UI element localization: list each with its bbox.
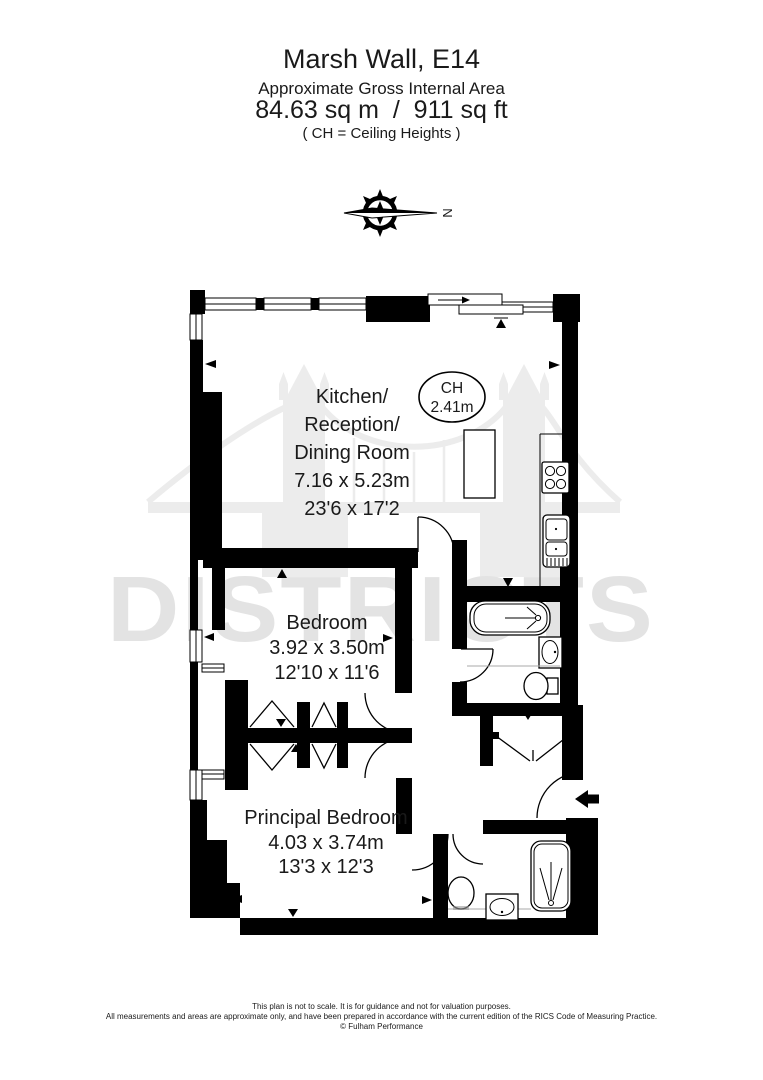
floorplan-page: Marsh Wall, E14 Approximate Gross Intern…	[0, 0, 763, 1080]
principal-bedroom-dims-imperial: 13'3 x 12'3	[278, 856, 374, 878]
disclaimer-copyright: © Fulham Performance	[0, 1022, 763, 1031]
ensuite-toilet-icon	[448, 877, 474, 910]
kitchen-label-line3: Dining Room	[294, 442, 410, 464]
kitchen-dims-imperial: 23'6 x 17'2	[304, 498, 400, 520]
hall-closet-doors	[496, 736, 568, 761]
ensuite-fixtures	[448, 841, 571, 920]
disclaimer-line1: This plan is not to scale. It is for gui…	[0, 1002, 763, 1011]
bedroom-door	[365, 693, 405, 733]
window	[202, 664, 224, 672]
ceiling-height-badge: CH 2.41m	[419, 372, 485, 422]
compass-icon: N	[344, 189, 455, 237]
principal-bedroom-label: Principal Bedroom	[244, 807, 407, 829]
window	[190, 630, 202, 662]
kitchen-label-line2: Reception/	[304, 414, 400, 436]
shower-icon	[531, 841, 571, 911]
ensuite-washbasin-icon	[486, 894, 518, 920]
hall-principal-door	[365, 738, 405, 778]
disclaimer-line2: All measurements and areas are approxima…	[0, 1012, 763, 1021]
window	[202, 770, 224, 779]
compass-north-label: N	[440, 208, 455, 217]
kitchen-dims-metric: 7.16 x 5.23m	[294, 470, 410, 492]
ensuite-door	[453, 834, 483, 864]
window	[264, 298, 311, 310]
toilet-icon	[524, 673, 558, 700]
kitchen-sink-icon	[543, 515, 570, 567]
window	[319, 298, 366, 310]
window	[205, 298, 256, 310]
bathtub-icon	[470, 601, 550, 635]
entrance-arrow-icon	[575, 790, 599, 808]
washbasin-icon	[539, 637, 562, 668]
kitchen-island	[464, 430, 495, 498]
ch-label: CH	[441, 380, 463, 397]
window	[190, 770, 202, 800]
principal-bedroom-dims-metric: 4.03 x 3.74m	[268, 832, 384, 854]
floorplan-svg: DISTRICTS N	[0, 0, 763, 1080]
window	[190, 314, 202, 340]
bedroom-dims-metric: 3.92 x 3.50m	[269, 637, 385, 659]
kitchen-door	[418, 517, 454, 553]
ch-value: 2.41m	[430, 399, 473, 416]
bedroom-dims-imperial: 12'10 x 11'6	[274, 662, 379, 684]
hob-icon	[542, 462, 569, 493]
bedroom-label: Bedroom	[286, 612, 367, 634]
kitchen-label-line1: Kitchen/	[316, 386, 389, 408]
